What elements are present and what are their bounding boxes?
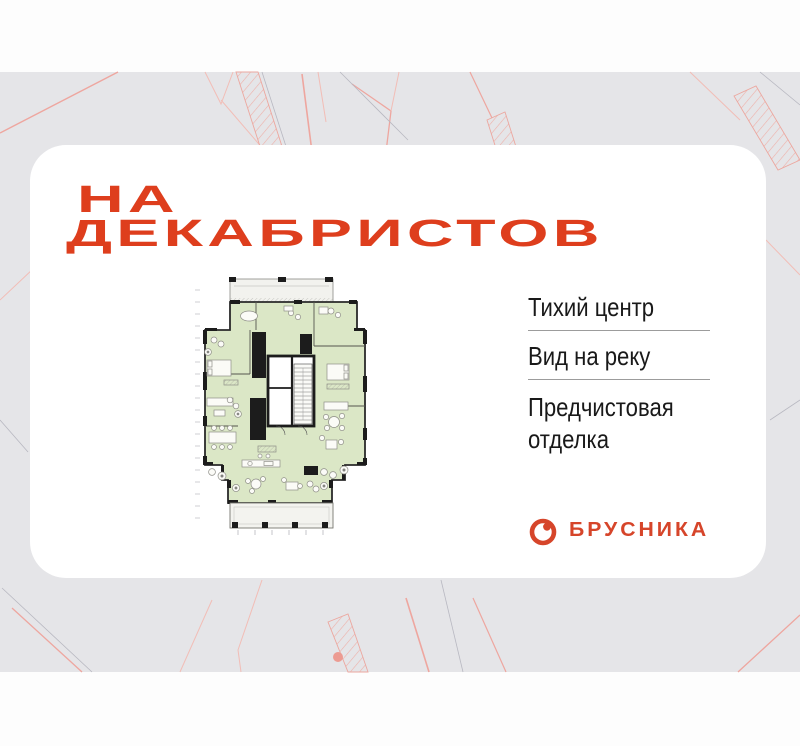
- stair-elevator-core: [268, 356, 314, 435]
- brusnika-logo-text: БРУСНИКА: [569, 519, 709, 542]
- left-dimension-ruler: [195, 290, 200, 518]
- brusnika-berry-icon: [529, 517, 559, 547]
- top-white-band: [0, 0, 800, 72]
- feature-river-view: Вид на реку: [528, 341, 712, 372]
- feature-pre-finishing: Предчистовая отделка: [528, 391, 712, 455]
- bottom-white-band: [0, 672, 800, 746]
- promo-banner: НА ДЕКАБРИСТОВ: [0, 0, 800, 746]
- feature-divider: [528, 379, 710, 380]
- bottom-dimension-ruler: [238, 530, 323, 535]
- apartment-floor-plan: [194, 276, 370, 538]
- site-plan-marker-dot: [333, 652, 343, 662]
- top-balcony: [229, 277, 333, 303]
- bottom-terrace: [230, 503, 333, 528]
- page-title-line-2: ДЕКАБРИСТОВ: [66, 214, 604, 254]
- feature-divider: [528, 330, 710, 331]
- brusnika-logo: БРУСНИКА: [528, 516, 748, 548]
- promo-card: НА ДЕКАБРИСТОВ: [30, 145, 766, 578]
- feature-quiet-center: Тихий центр: [528, 292, 712, 323]
